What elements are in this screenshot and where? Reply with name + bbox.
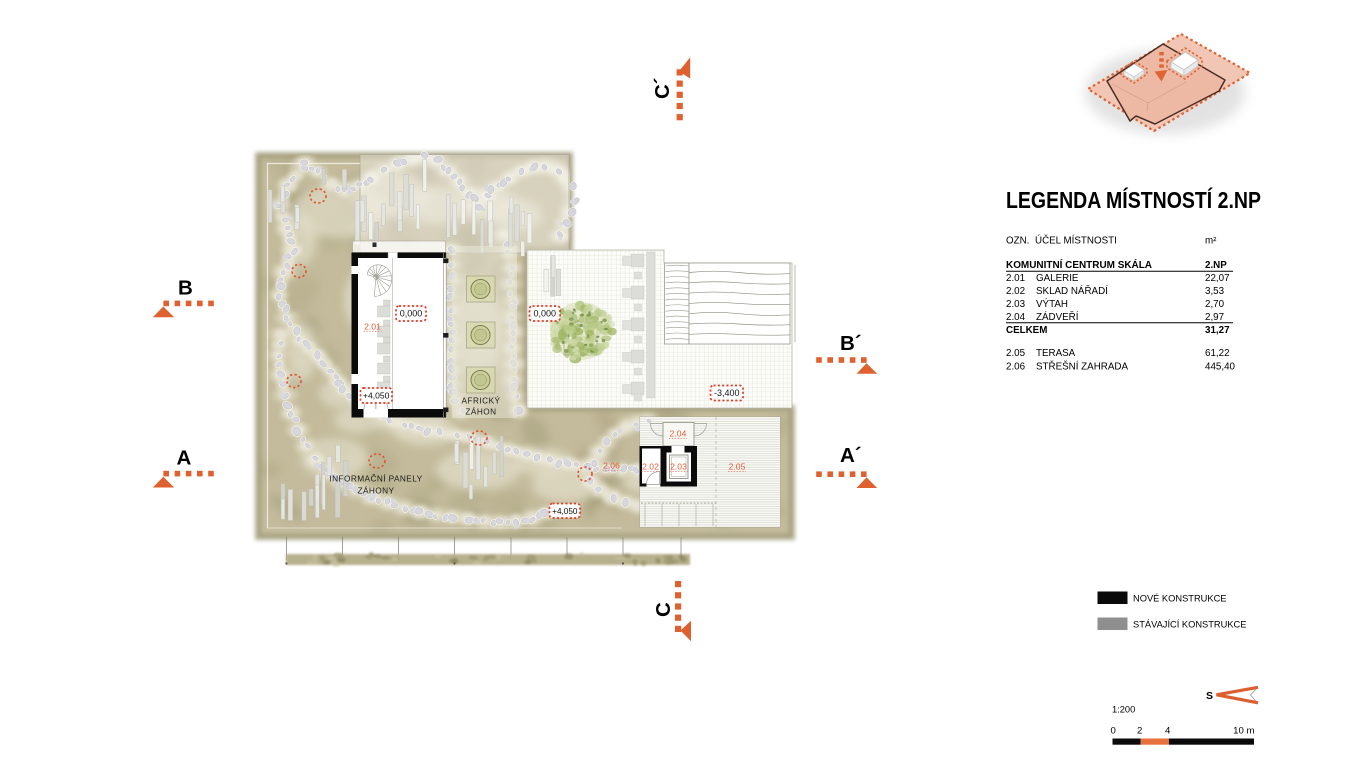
svg-text:INFORMAČNÍ PANELY: INFORMAČNÍ PANELY <box>329 474 422 484</box>
svg-text:2.02: 2.02 <box>1006 286 1025 297</box>
svg-text:22,07: 22,07 <box>1205 273 1230 284</box>
svg-text:2.NP: 2.NP <box>1205 260 1227 271</box>
svg-text:AFRICKÝ: AFRICKÝ <box>462 396 501 406</box>
svg-text:3,53: 3,53 <box>1205 286 1225 297</box>
svg-text:KOMUNITNÍ CENTRUM SKÁLA: KOMUNITNÍ CENTRUM SKÁLA <box>1006 259 1152 271</box>
svg-text:2.04: 2.04 <box>670 429 687 439</box>
svg-text:2.04: 2.04 <box>1006 312 1026 323</box>
svg-text:0: 0 <box>1111 726 1116 737</box>
svg-text:CELKEM: CELKEM <box>1006 325 1047 336</box>
svg-text:A: A <box>177 447 192 470</box>
svg-text:2.03: 2.03 <box>1006 299 1026 310</box>
svg-text:2,97: 2,97 <box>1205 312 1224 323</box>
svg-text:0,000: 0,000 <box>534 309 557 319</box>
svg-text:LEGENDA MÍSTNOSTÍ 2.NP: LEGENDA MÍSTNOSTÍ 2.NP <box>1006 186 1261 213</box>
svg-text:B: B <box>178 277 193 300</box>
svg-text:2.06: 2.06 <box>1006 362 1026 373</box>
svg-text:2.02: 2.02 <box>642 462 659 472</box>
svg-text:0,000: 0,000 <box>400 309 423 319</box>
svg-text:C: C <box>652 602 675 617</box>
svg-text:STÁVAJÍCÍ KONSTRUKCE: STÁVAJÍCÍ KONSTRUKCE <box>1133 620 1246 630</box>
svg-text:STŘEŠNÍ ZAHRADA: STŘEŠNÍ ZAHRADA <box>1036 362 1128 373</box>
svg-text:GALERIE: GALERIE <box>1036 273 1079 284</box>
svg-text:m²: m² <box>1205 236 1217 247</box>
svg-text:2.05: 2.05 <box>1006 348 1026 359</box>
svg-text:+4,050: +4,050 <box>363 391 390 401</box>
svg-text:A´: A´ <box>840 444 862 467</box>
svg-text:C´: C´ <box>651 77 674 99</box>
svg-text:ZÁHONY: ZÁHONY <box>358 486 395 496</box>
svg-text:2.05: 2.05 <box>729 462 746 472</box>
svg-text:4: 4 <box>1165 726 1171 737</box>
svg-text:2: 2 <box>1137 726 1142 737</box>
svg-text:2,70: 2,70 <box>1205 299 1225 310</box>
svg-text:10 m: 10 m <box>1233 726 1254 737</box>
svg-text:2.01: 2.01 <box>364 322 381 332</box>
svg-text:S: S <box>1206 690 1213 702</box>
svg-text:B´: B´ <box>840 332 862 355</box>
svg-text:VÝTAH: VÝTAH <box>1036 299 1068 310</box>
svg-text:ÚČEL MÍSTNOSTI: ÚČEL MÍSTNOSTI <box>1035 236 1117 247</box>
svg-text:445,40: 445,40 <box>1205 362 1236 373</box>
svg-text:OZN.: OZN. <box>1006 236 1029 247</box>
svg-text:2.01: 2.01 <box>1006 273 1025 284</box>
svg-text:61,22: 61,22 <box>1205 348 1230 359</box>
svg-text:SKLAD NÁŘADÍ: SKLAD NÁŘADÍ <box>1036 286 1108 297</box>
svg-text:31,27: 31,27 <box>1205 325 1230 336</box>
svg-text:2.06: 2.06 <box>603 461 620 471</box>
svg-text:ZÁDVEŘÍ: ZÁDVEŘÍ <box>1036 312 1079 323</box>
svg-text:+4,050: +4,050 <box>552 507 578 516</box>
svg-text:2.03: 2.03 <box>670 462 687 472</box>
svg-text:1:200: 1:200 <box>1112 705 1135 715</box>
svg-text:ZÁHON: ZÁHON <box>465 407 496 417</box>
svg-text:-3,400: -3,400 <box>714 388 740 398</box>
svg-text:TERASA: TERASA <box>1036 348 1076 359</box>
svg-text:NOVÉ KONSTRUKCE: NOVÉ KONSTRUKCE <box>1133 594 1227 604</box>
